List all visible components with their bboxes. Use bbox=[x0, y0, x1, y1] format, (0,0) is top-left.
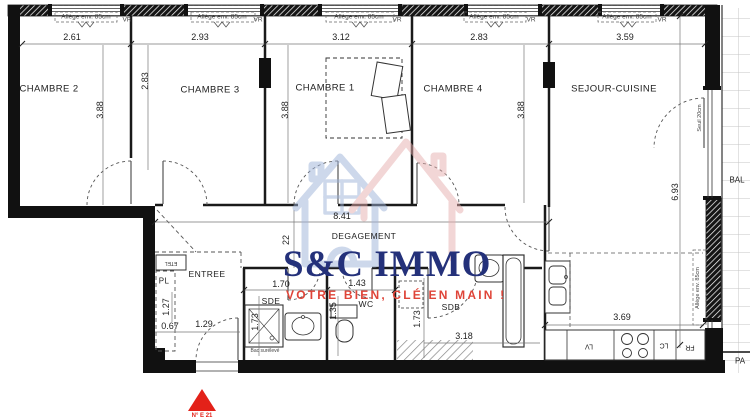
window-allege-label-2: Allège env. 85cm bbox=[197, 14, 246, 21]
dim-entree-a: 1.27 bbox=[161, 298, 171, 316]
floor-plan-drawing bbox=[0, 0, 750, 420]
plan-marker-label: N° E 21 bbox=[192, 413, 213, 419]
shower-tray-note: Bac surélevé bbox=[251, 348, 280, 354]
dim-window-sejour: 3.59 bbox=[616, 32, 634, 42]
allege-right-note: Allège env. 85cm bbox=[695, 267, 701, 309]
dim-depth-chambre4: 3.88 bbox=[516, 101, 526, 119]
room-label-degagement: DEGAGEMENT bbox=[332, 231, 396, 241]
balcony-label: BAL bbox=[729, 176, 744, 185]
room-label-sdb: SDB bbox=[442, 302, 461, 312]
room-label-placard: PL bbox=[159, 277, 170, 286]
dim-sdb-depth: 1.73 bbox=[412, 310, 422, 328]
dishwasher-label: LV bbox=[585, 343, 593, 350]
seuil-note: Seuil 20cm bbox=[697, 104, 703, 131]
room-label-chambre2: CHAMBRE 2 bbox=[19, 84, 78, 95]
dim-entree-b: 0.67 bbox=[161, 321, 179, 331]
dim-corridor-width: 22 bbox=[281, 235, 291, 245]
kitchen-counter bbox=[545, 261, 705, 360]
etel-box-label: ETEL bbox=[165, 260, 178, 266]
dim-corridor-length: 8.41 bbox=[333, 211, 351, 221]
window-allege-label-3: Allège env. 85cm bbox=[334, 14, 383, 21]
dim-window-chambre2: 2.61 bbox=[63, 32, 81, 42]
floor-plan-page: Allège env. 85cm VR Allège env. 85cm VR … bbox=[0, 0, 750, 420]
dim-wc-depth: 1.35 bbox=[328, 302, 338, 320]
window-allege-label-1: Allège env. 85cm bbox=[61, 14, 110, 21]
washer-label: LC bbox=[660, 342, 669, 349]
dim-depth-chambre1: 3.88 bbox=[280, 101, 290, 119]
watermark-brand: S&C IMMO bbox=[283, 246, 491, 283]
watermark-tagline: VOTRE BIEN, CLÉ EN MAIN ! bbox=[286, 289, 506, 301]
room-label-sde: SDE bbox=[262, 296, 281, 306]
dim-sdb-width: 3.18 bbox=[455, 331, 473, 341]
window-vr-label-1: VR bbox=[122, 17, 131, 24]
room-label-chambre3: CHAMBRE 3 bbox=[180, 85, 239, 96]
dim-entree-c: 1.29 bbox=[195, 319, 213, 329]
pa-label: PA bbox=[735, 357, 745, 366]
room-label-sejour-cuisine: SEJOUR-CUISINE bbox=[571, 84, 657, 95]
dim-sde-depth: 1.73 bbox=[250, 313, 260, 331]
window-vr-label-2: VR bbox=[253, 17, 262, 24]
dim-wc-width: 1.43 bbox=[348, 278, 366, 288]
room-label-wc: WC bbox=[359, 299, 374, 309]
room-label-entree: ENTREE bbox=[189, 269, 226, 279]
window-allege-label-5: Allège env. 85cm bbox=[602, 14, 651, 21]
window-vr-label-4: VR bbox=[526, 17, 535, 24]
dim-height-sejour: 6.93 bbox=[670, 183, 680, 201]
dim-window-chambre4: 2.83 bbox=[470, 32, 488, 42]
window-vr-label-3: VR bbox=[392, 17, 401, 24]
bed bbox=[326, 58, 410, 138]
dim-window-chambre1: 3.12 bbox=[332, 32, 350, 42]
dim-depth-chambre2: 3.88 bbox=[95, 101, 105, 119]
balcony-tiles bbox=[722, 5, 750, 373]
window-vr-label-5: VR bbox=[657, 17, 666, 24]
plan-marker-triangle bbox=[188, 389, 216, 411]
dim-sde-width: 1.70 bbox=[272, 279, 290, 289]
sde-washbasin bbox=[285, 313, 321, 340]
fridge-label: FR bbox=[685, 344, 694, 351]
room-label-chambre4: CHAMBRE 4 bbox=[423, 84, 482, 95]
dim-window-chambre3: 2.93 bbox=[191, 32, 209, 42]
room-label-chambre1: CHAMBRE 1 bbox=[295, 83, 354, 94]
dim-kitchen-width: 3.69 bbox=[613, 312, 631, 322]
dim-depth-chambre3: 2.83 bbox=[140, 72, 150, 90]
window-allege-label-4: Allège env. 85cm bbox=[469, 14, 518, 21]
